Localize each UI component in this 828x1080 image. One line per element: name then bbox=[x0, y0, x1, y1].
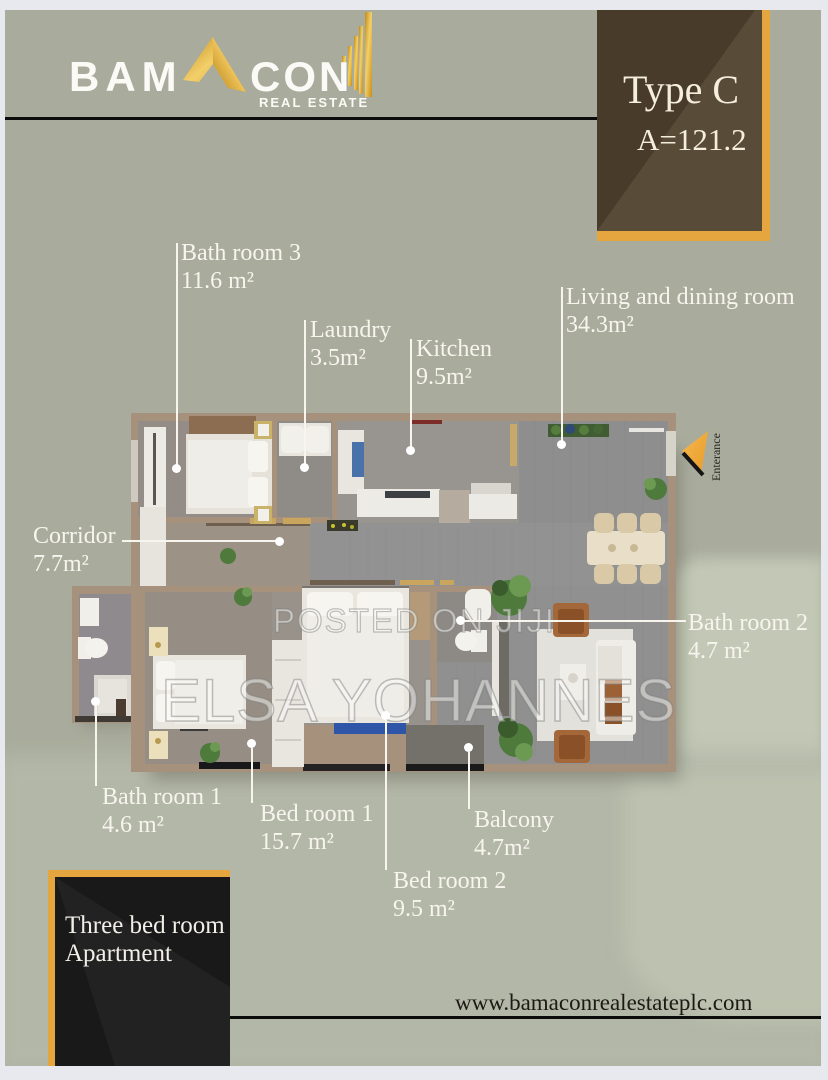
svg-text:Enterance: Enterance bbox=[709, 433, 723, 481]
